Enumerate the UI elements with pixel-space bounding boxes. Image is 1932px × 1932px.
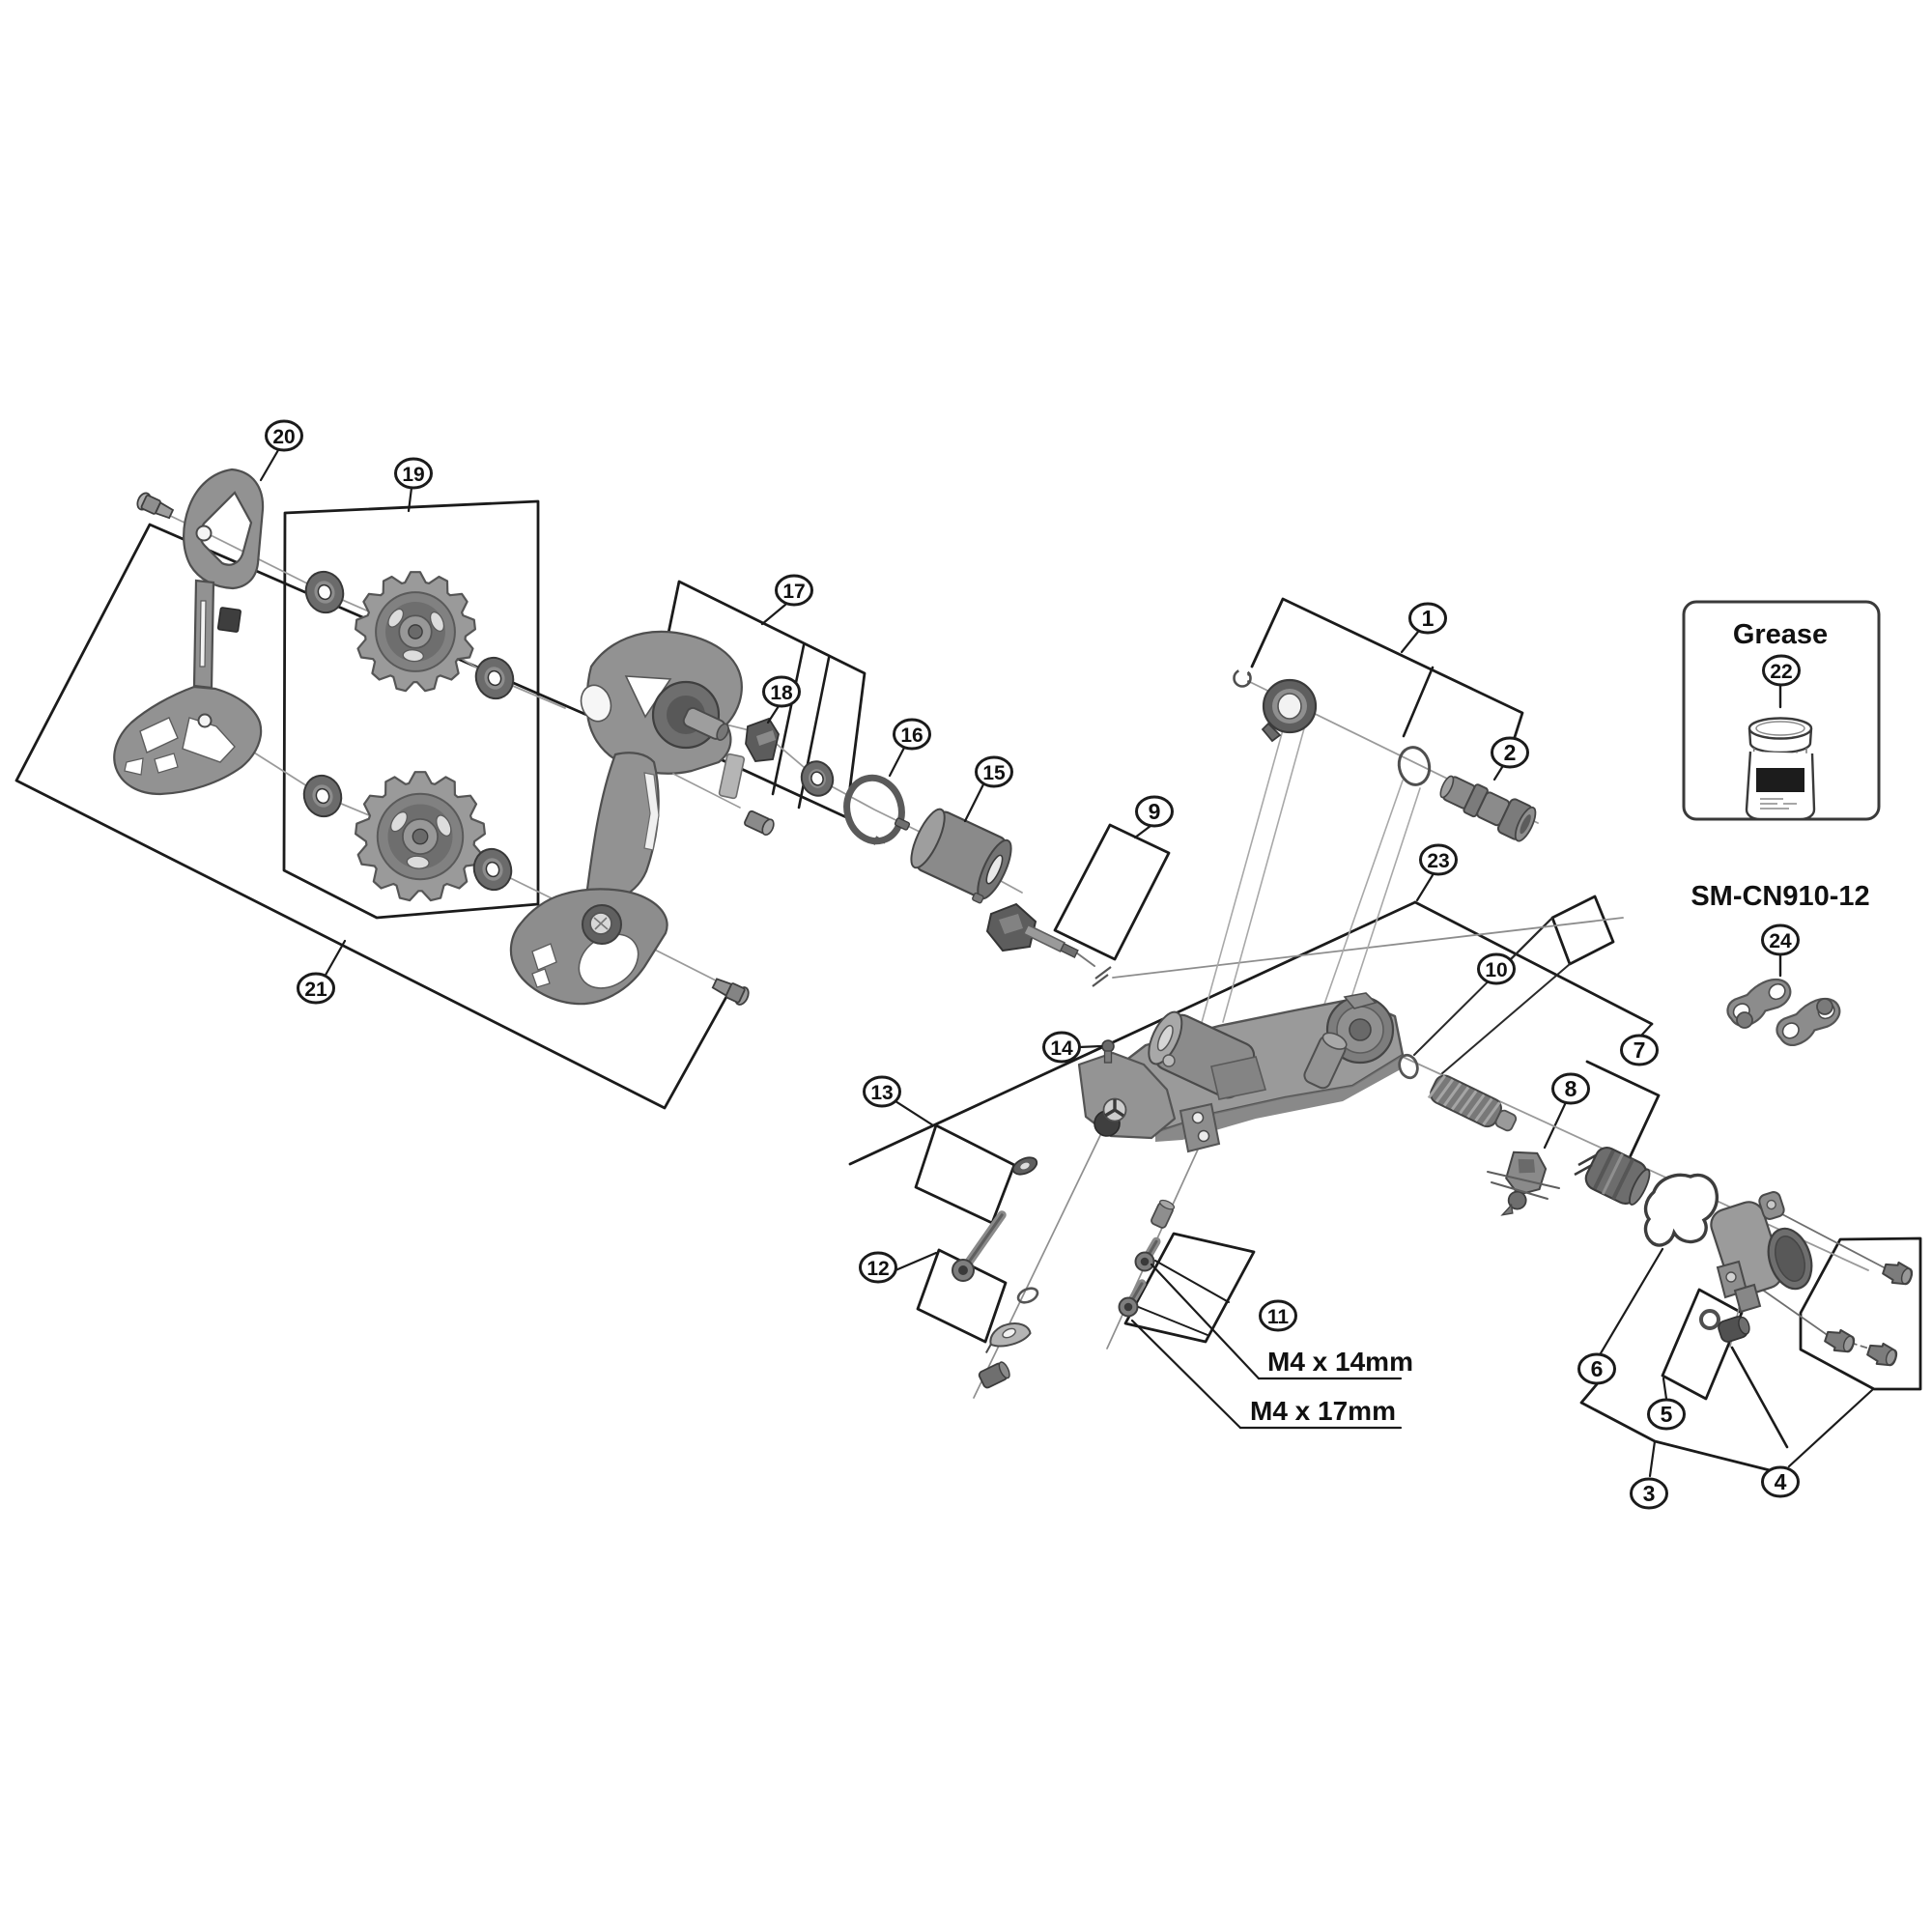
- svg-text:11: 11: [1267, 1306, 1290, 1328]
- svg-text:M4 x 17mm: M4 x 17mm: [1250, 1396, 1396, 1426]
- svg-text:19: 19: [402, 464, 424, 486]
- svg-text:7: 7: [1634, 1037, 1646, 1063]
- svg-text:SM-CN910-12: SM-CN910-12: [1690, 881, 1869, 912]
- svg-text:8: 8: [1565, 1076, 1577, 1101]
- svg-text:20: 20: [272, 426, 295, 448]
- svg-text:1: 1: [1422, 606, 1435, 631]
- svg-text:17: 17: [782, 581, 805, 603]
- svg-text:18: 18: [770, 682, 793, 704]
- svg-text:13: 13: [870, 1082, 893, 1104]
- svg-text:15: 15: [982, 762, 1006, 784]
- svg-text:22: 22: [1770, 661, 1792, 683]
- svg-text:3: 3: [1643, 1481, 1656, 1506]
- svg-text:12: 12: [867, 1258, 889, 1280]
- svg-text:10: 10: [1485, 959, 1507, 981]
- svg-text:14: 14: [1050, 1037, 1073, 1060]
- svg-text:4: 4: [1775, 1469, 1787, 1494]
- svg-text:24: 24: [1769, 930, 1792, 952]
- svg-text:16: 16: [900, 724, 923, 747]
- svg-text:5: 5: [1661, 1402, 1673, 1427]
- svg-text:23: 23: [1427, 850, 1449, 872]
- svg-text:2: 2: [1504, 740, 1517, 765]
- svg-text:Grease: Grease: [1733, 619, 1828, 650]
- svg-text:6: 6: [1591, 1356, 1604, 1381]
- svg-text:9: 9: [1149, 799, 1161, 824]
- svg-text:M4 x 14mm: M4 x 14mm: [1267, 1347, 1413, 1377]
- svg-text:21: 21: [304, 979, 327, 1001]
